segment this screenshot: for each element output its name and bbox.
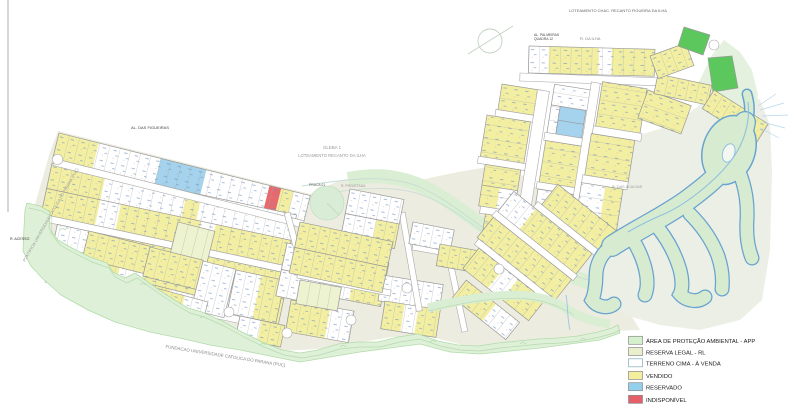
svg-text:R. DAS ACACIAS: R. DAS ACACIAS — [612, 185, 643, 189]
svg-text:R. DA ILHA: R. DA ILHA — [580, 36, 601, 41]
svg-text:AL. DAS FIGUEIRAS: AL. DAS FIGUEIRAS — [131, 125, 169, 130]
svg-text:VENDIDO: VENDIDO — [646, 374, 673, 380]
svg-text:R. PROJETADA: R. PROJETADA — [341, 184, 366, 188]
svg-text:RESERVA LEGAL - RL: RESERVA LEGAL - RL — [646, 350, 706, 356]
svg-text:INDISPONÍVEL: INDISPONÍVEL — [646, 397, 687, 404]
svg-text:R. ACESSO: R. ACESSO — [10, 237, 30, 241]
svg-text:RESERVADO: RESERVADO — [646, 386, 682, 392]
svg-text:LOTEAMENTO CHAC. RECANTO FIGUE: LOTEAMENTO CHAC. RECANTO FIGUEIRA DA ILH… — [569, 8, 667, 13]
svg-text:PRACA 01: PRACA 01 — [309, 183, 325, 187]
svg-text:ÁREA DE PROTEÇÃO AMBIENTAL - A: ÁREA DE PROTEÇÃO AMBIENTAL - APP — [646, 338, 755, 345]
svg-text:TERRENO CIMA - À VENDA: TERRENO CIMA - À VENDA — [646, 361, 721, 368]
svg-text:GLEBA 1: GLEBA 1 — [323, 145, 342, 150]
svg-text:QUADRA 12: QUADRA 12 — [534, 37, 553, 41]
svg-text:LOTEAMENTO RECANTO DA ILHA: LOTEAMENTO RECANTO DA ILHA — [298, 153, 366, 158]
